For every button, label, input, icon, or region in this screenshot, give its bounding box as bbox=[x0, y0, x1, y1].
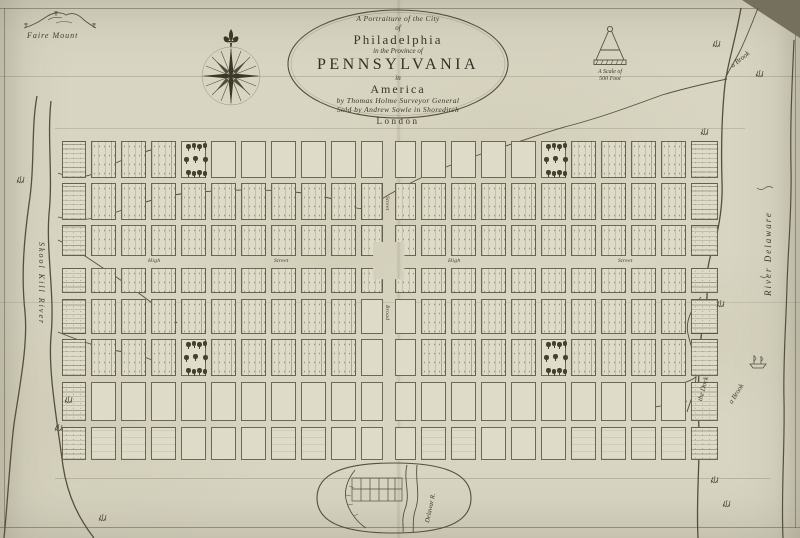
grass-tuft-icon bbox=[716, 300, 726, 308]
city-block bbox=[571, 183, 596, 220]
city-block bbox=[91, 382, 116, 421]
city-block bbox=[661, 339, 686, 376]
city-block bbox=[271, 382, 296, 421]
city-block bbox=[661, 141, 686, 178]
city-block bbox=[601, 141, 626, 178]
city-block bbox=[301, 183, 326, 220]
city-block bbox=[271, 141, 296, 178]
city-block bbox=[395, 339, 416, 376]
title-cartouche: A Portraiture of the City of Philadelphi… bbox=[288, 13, 508, 126]
cartouche-line: of bbox=[288, 25, 508, 32]
grass-tuft-icon bbox=[700, 128, 710, 136]
city-block bbox=[91, 299, 116, 334]
grass-tuft-icon bbox=[722, 500, 732, 508]
city-block bbox=[451, 225, 476, 256]
city-block bbox=[361, 299, 383, 334]
city-block bbox=[571, 268, 596, 293]
map-title-city: Philadelphia bbox=[288, 33, 508, 46]
tree-icon bbox=[202, 341, 208, 348]
city-block bbox=[91, 183, 116, 220]
city-block bbox=[181, 268, 206, 293]
city-block bbox=[481, 268, 506, 293]
tree-icon bbox=[543, 157, 549, 164]
tree-icon bbox=[562, 355, 568, 362]
city-block bbox=[211, 268, 236, 293]
schuylkill-river-label: Skool Kill River bbox=[37, 242, 46, 325]
city-block bbox=[151, 268, 176, 293]
grass-tuft-icon bbox=[54, 424, 64, 432]
high-street-label: Street bbox=[274, 257, 289, 263]
city-block bbox=[62, 225, 86, 256]
city-block bbox=[211, 141, 236, 178]
city-block bbox=[451, 268, 476, 293]
city-block bbox=[121, 382, 146, 421]
tree-icon bbox=[562, 157, 568, 164]
city-block bbox=[271, 339, 296, 376]
tree-icon bbox=[562, 341, 568, 348]
city-block bbox=[395, 299, 416, 334]
cartouche-line: in bbox=[288, 75, 508, 82]
city-block bbox=[601, 339, 626, 376]
antique-map-sheet: A Portraiture of the City of Philadelphi… bbox=[0, 0, 800, 538]
city-block bbox=[451, 299, 476, 334]
city-block bbox=[241, 299, 266, 334]
faire-mount-label: Faire Mount bbox=[27, 31, 78, 40]
cartouche-publisher: Sold by Andrew Sowle in Shoreditch bbox=[288, 106, 508, 114]
city-block bbox=[631, 183, 656, 220]
cartouche-surveyor: by Thomas Holme Surveyor General bbox=[288, 97, 508, 105]
city-block bbox=[661, 299, 686, 334]
city-block bbox=[691, 225, 718, 256]
city-block bbox=[511, 268, 536, 293]
map-title-america: America bbox=[288, 83, 508, 95]
city-block bbox=[181, 427, 206, 460]
city-block bbox=[395, 382, 416, 421]
city-block bbox=[121, 225, 146, 256]
tree-icon bbox=[183, 355, 189, 362]
tree-icon bbox=[202, 355, 208, 362]
city-block bbox=[631, 382, 656, 421]
cartouche-line: A Portraiture of the City bbox=[288, 15, 508, 23]
city-block bbox=[361, 339, 383, 376]
city-block bbox=[301, 382, 326, 421]
tree-icon bbox=[202, 171, 208, 178]
high-street-label: High bbox=[148, 257, 160, 263]
city-block bbox=[241, 225, 266, 256]
city-block bbox=[91, 141, 116, 178]
city-block bbox=[271, 268, 296, 293]
city-block bbox=[241, 141, 266, 178]
city-block bbox=[241, 268, 266, 293]
city-block bbox=[211, 225, 236, 256]
broad-street-label-upper: Street bbox=[385, 196, 391, 211]
city-block bbox=[571, 299, 596, 334]
city-block bbox=[301, 299, 326, 334]
city-block bbox=[331, 382, 356, 421]
city-block bbox=[91, 225, 116, 256]
city-block bbox=[241, 382, 266, 421]
city-block bbox=[62, 339, 86, 376]
city-block bbox=[181, 299, 206, 334]
city-block bbox=[601, 299, 626, 334]
city-block bbox=[511, 141, 536, 178]
scale-caption-line1: A Scale of bbox=[585, 68, 634, 75]
city-block bbox=[211, 183, 236, 220]
high-street-label: High bbox=[448, 257, 460, 263]
grass-tuft-icon bbox=[16, 176, 26, 184]
city-block bbox=[481, 427, 506, 460]
city-block bbox=[421, 427, 446, 460]
city-block bbox=[661, 268, 686, 293]
city-block bbox=[361, 382, 383, 421]
cartouche-london: London bbox=[288, 117, 508, 126]
city-block bbox=[601, 225, 626, 256]
city-block bbox=[661, 225, 686, 256]
city-block bbox=[331, 268, 356, 293]
city-block bbox=[571, 141, 596, 178]
city-block bbox=[181, 225, 206, 256]
city-block bbox=[211, 382, 236, 421]
city-block bbox=[421, 382, 446, 421]
city-block bbox=[62, 141, 86, 178]
map-title-province: PENNSYLVANIA bbox=[288, 57, 508, 73]
city-block bbox=[151, 183, 176, 220]
high-street-label: Street bbox=[618, 257, 633, 263]
grass-tuft-icon bbox=[712, 40, 722, 48]
tree-icon bbox=[562, 143, 568, 150]
tree-icon bbox=[202, 143, 208, 150]
city-block bbox=[301, 141, 326, 178]
grass-tuft-icon bbox=[98, 514, 108, 522]
city-block bbox=[121, 141, 146, 178]
park-square bbox=[541, 141, 566, 178]
city-block bbox=[151, 339, 176, 376]
city-block bbox=[481, 382, 506, 421]
city-block bbox=[241, 427, 266, 460]
city-block bbox=[301, 339, 326, 376]
city-block bbox=[421, 183, 446, 220]
city-block bbox=[62, 427, 86, 460]
city-block bbox=[121, 427, 146, 460]
city-block bbox=[331, 299, 356, 334]
city-block bbox=[62, 268, 86, 293]
city-block bbox=[395, 427, 416, 460]
city-block bbox=[121, 339, 146, 376]
city-block bbox=[421, 141, 446, 178]
city-block bbox=[121, 268, 146, 293]
city-block bbox=[151, 427, 176, 460]
city-block bbox=[451, 339, 476, 376]
city-block bbox=[601, 268, 626, 293]
city-block bbox=[361, 141, 383, 178]
city-block bbox=[395, 141, 416, 178]
city-block bbox=[511, 183, 536, 220]
city-block bbox=[631, 427, 656, 460]
city-block bbox=[301, 427, 326, 460]
city-block bbox=[511, 382, 536, 421]
grass-tuft-icon bbox=[64, 396, 74, 404]
tree-icon bbox=[192, 354, 198, 361]
city-block bbox=[421, 225, 446, 256]
city-block bbox=[211, 427, 236, 460]
city-block bbox=[91, 268, 116, 293]
city-block bbox=[271, 183, 296, 220]
city-block bbox=[151, 382, 176, 421]
city-block bbox=[631, 141, 656, 178]
city-block bbox=[541, 427, 566, 460]
city-block bbox=[331, 427, 356, 460]
city-block bbox=[62, 299, 86, 334]
city-block bbox=[331, 141, 356, 178]
city-block bbox=[691, 299, 718, 334]
city-block bbox=[301, 268, 326, 293]
park-square bbox=[181, 339, 206, 376]
city-block bbox=[361, 183, 383, 220]
city-block bbox=[541, 183, 566, 220]
city-block bbox=[541, 268, 566, 293]
tree-icon bbox=[552, 156, 558, 163]
city-block bbox=[121, 299, 146, 334]
city-block bbox=[151, 225, 176, 256]
park-square bbox=[541, 339, 566, 376]
tree-icon bbox=[552, 354, 558, 361]
tree-icon bbox=[202, 157, 208, 164]
grass-tuft-icon bbox=[710, 476, 720, 484]
city-block bbox=[691, 141, 718, 178]
city-block bbox=[331, 183, 356, 220]
city-block bbox=[211, 339, 236, 376]
tree-icon bbox=[562, 171, 568, 178]
city-block bbox=[331, 225, 356, 256]
city-block bbox=[271, 299, 296, 334]
city-block bbox=[361, 427, 383, 460]
city-block bbox=[601, 183, 626, 220]
city-block bbox=[631, 339, 656, 376]
city-block bbox=[151, 299, 176, 334]
city-block bbox=[451, 427, 476, 460]
city-block bbox=[301, 225, 326, 256]
city-block bbox=[481, 183, 506, 220]
city-block bbox=[121, 183, 146, 220]
city-block bbox=[241, 183, 266, 220]
tree-icon bbox=[183, 157, 189, 164]
city-block bbox=[181, 382, 206, 421]
tree-icon bbox=[543, 355, 549, 362]
city-block bbox=[631, 268, 656, 293]
city-block bbox=[481, 299, 506, 334]
broad-street-label-lower: Broad bbox=[385, 305, 391, 320]
delaware-river-label: River Delaware bbox=[763, 211, 773, 296]
city-block bbox=[631, 299, 656, 334]
city-block bbox=[181, 183, 206, 220]
city-block bbox=[241, 339, 266, 376]
city-block bbox=[421, 299, 446, 334]
city-block bbox=[271, 427, 296, 460]
city-block bbox=[571, 382, 596, 421]
city-block bbox=[661, 382, 686, 421]
city-block bbox=[541, 299, 566, 334]
city-block bbox=[421, 339, 446, 376]
city-block bbox=[601, 427, 626, 460]
city-block bbox=[511, 427, 536, 460]
city-block bbox=[691, 339, 718, 376]
city-block bbox=[451, 183, 476, 220]
city-block bbox=[331, 339, 356, 376]
city-block bbox=[571, 225, 596, 256]
city-block bbox=[541, 382, 566, 421]
city-block bbox=[541, 225, 566, 256]
scale-caption-line2: 500 Foot bbox=[585, 75, 634, 82]
city-block bbox=[451, 382, 476, 421]
city-block bbox=[481, 339, 506, 376]
city-block bbox=[211, 299, 236, 334]
city-block bbox=[395, 183, 416, 220]
city-block bbox=[451, 141, 476, 178]
city-block bbox=[481, 141, 506, 178]
city-block bbox=[691, 183, 718, 220]
city-block bbox=[511, 339, 536, 376]
city-block bbox=[571, 427, 596, 460]
city-block bbox=[631, 225, 656, 256]
city-block bbox=[571, 339, 596, 376]
city-block bbox=[62, 183, 86, 220]
city-block bbox=[481, 225, 506, 256]
scale-caption: A Scale of 500 Foot bbox=[585, 68, 634, 82]
city-block bbox=[661, 183, 686, 220]
city-block bbox=[511, 299, 536, 334]
city-block bbox=[661, 427, 686, 460]
city-block bbox=[421, 268, 446, 293]
city-block bbox=[91, 427, 116, 460]
city-block bbox=[151, 141, 176, 178]
city-block bbox=[91, 339, 116, 376]
cartouche-line: in the Province of bbox=[288, 48, 508, 55]
city-block bbox=[601, 382, 626, 421]
city-block bbox=[271, 225, 296, 256]
grass-tuft-icon bbox=[755, 70, 765, 78]
tree-icon bbox=[192, 156, 198, 163]
city-block bbox=[511, 225, 536, 256]
tree-icon bbox=[562, 369, 568, 376]
tree-icon bbox=[202, 369, 208, 376]
park-square bbox=[181, 141, 206, 178]
city-block bbox=[691, 268, 718, 293]
city-block bbox=[691, 427, 718, 460]
